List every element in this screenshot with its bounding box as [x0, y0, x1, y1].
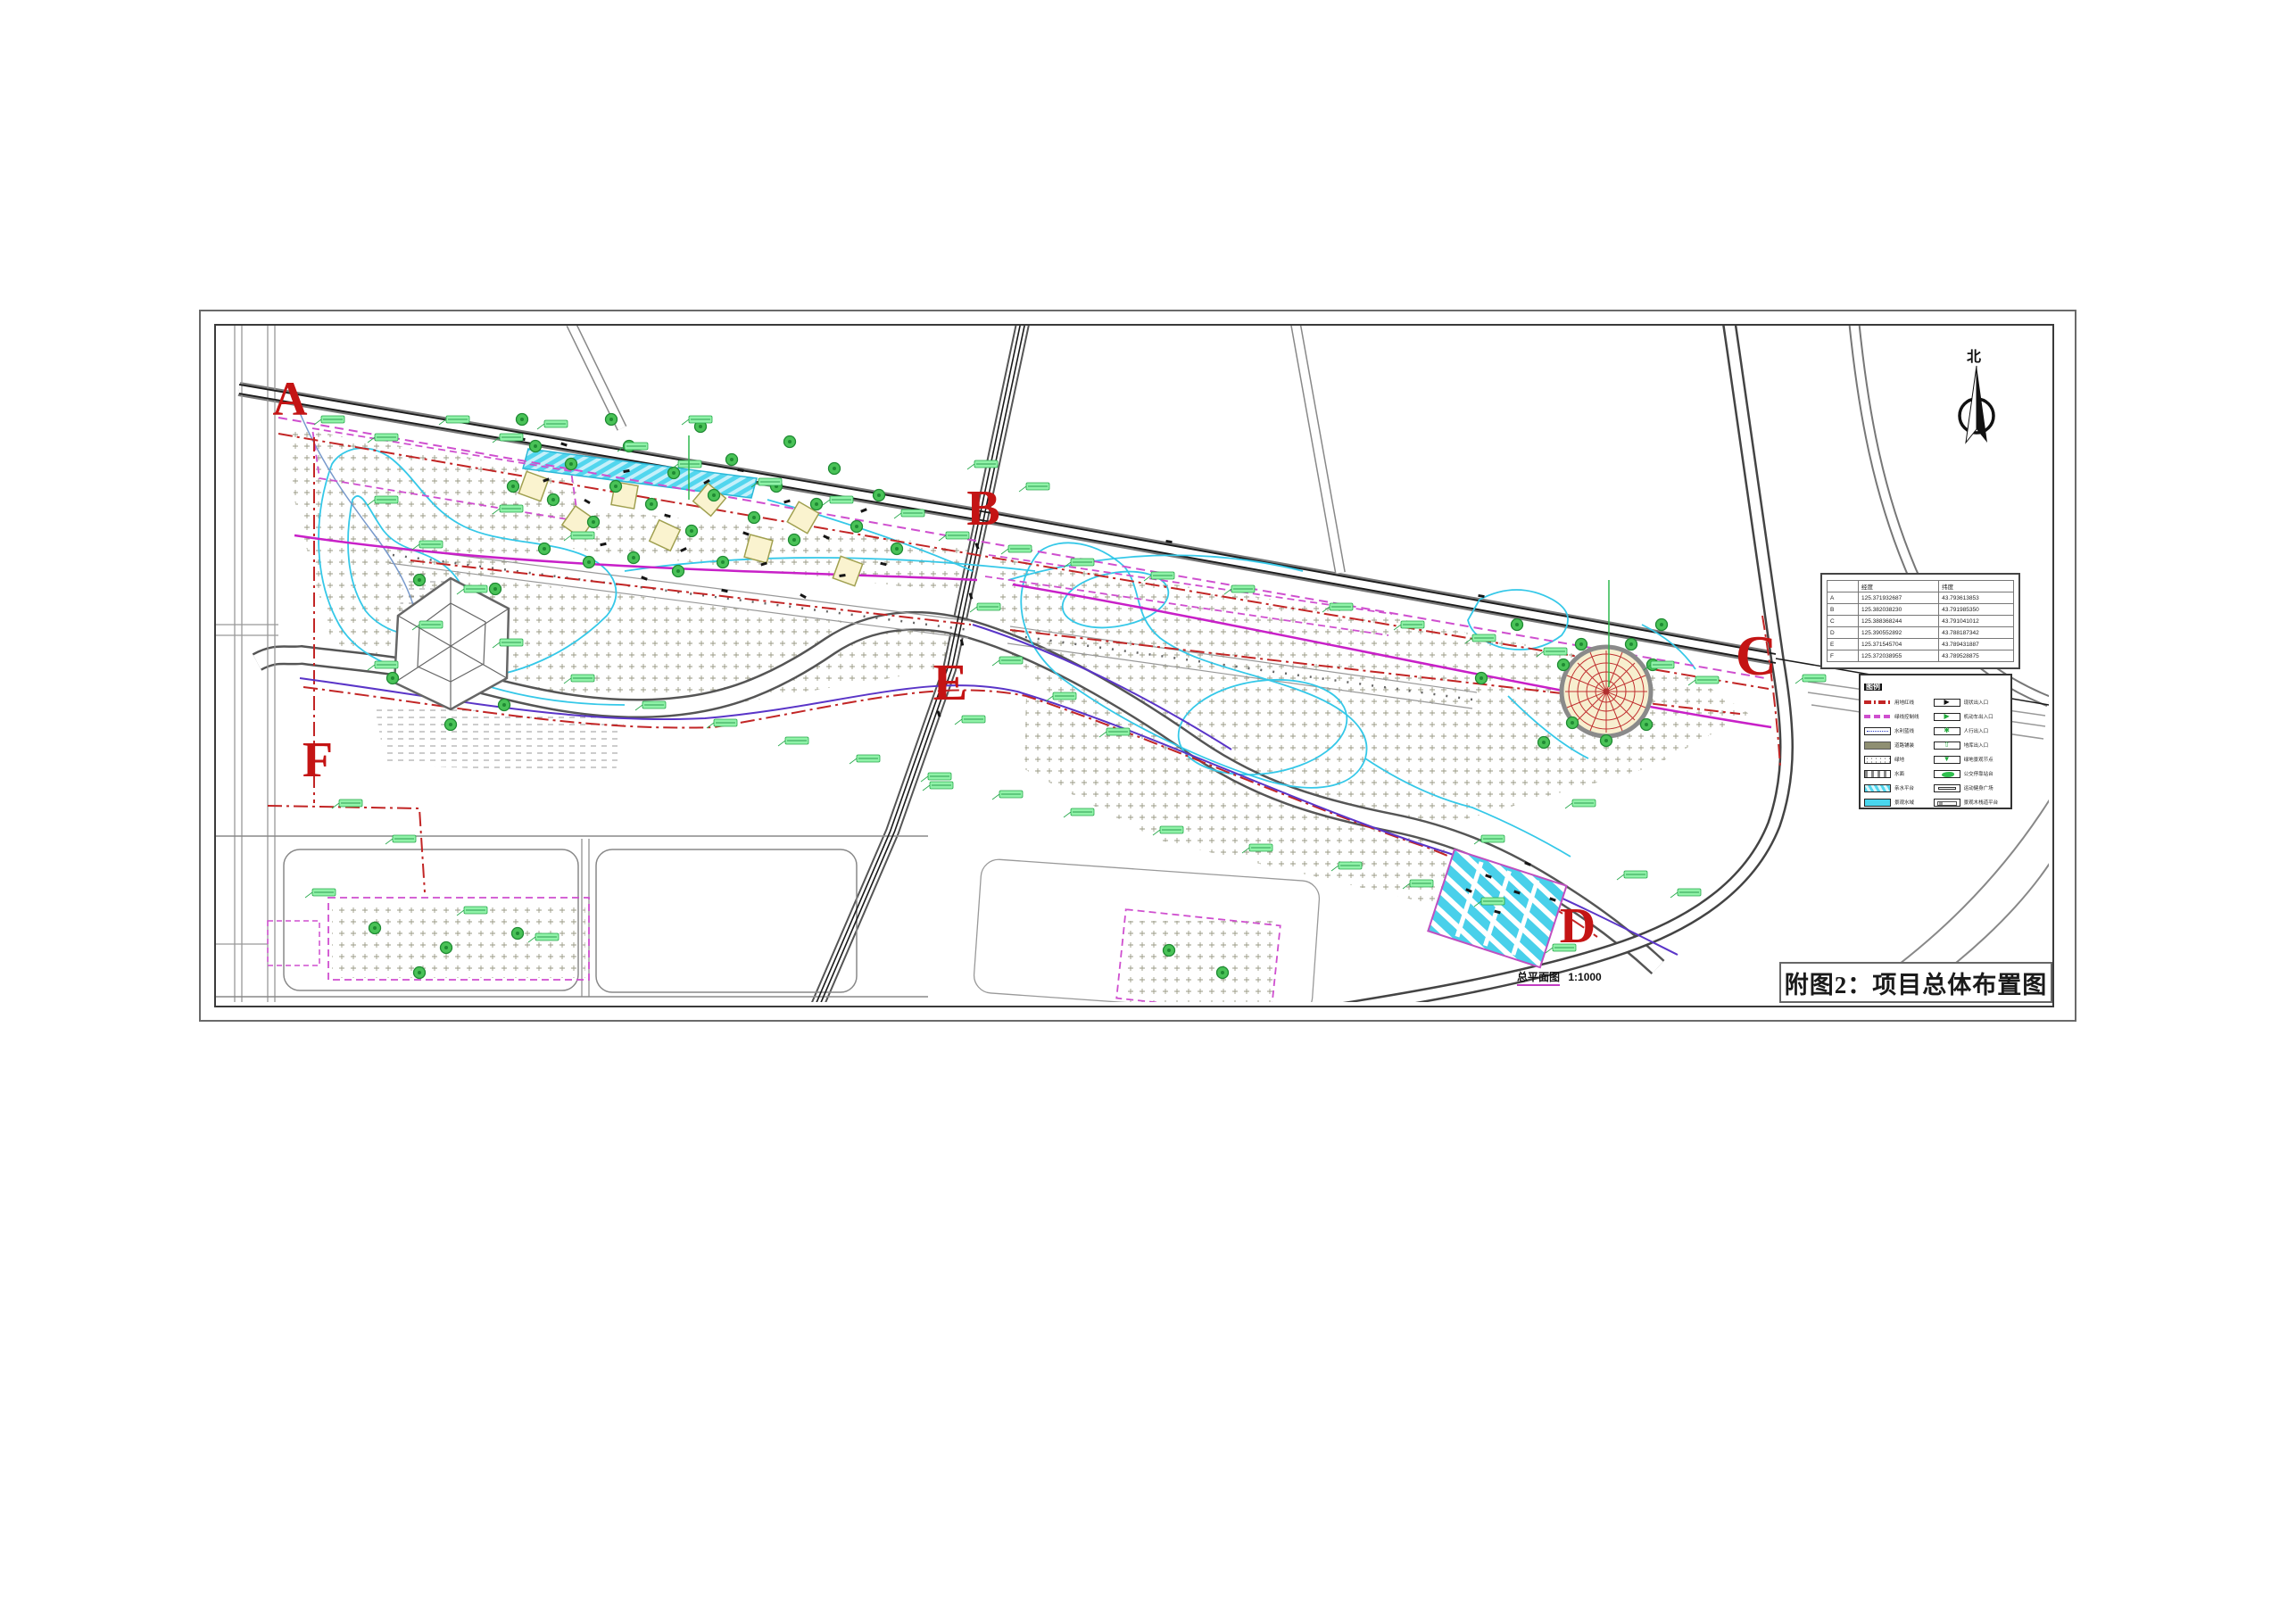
legend-item: 绿线控制线	[1864, 709, 1928, 724]
site-plan-drawing	[0, 0, 2296, 1624]
marker-a: A	[273, 375, 308, 423]
legend-title: 图例	[1864, 684, 1882, 691]
radial-plaza	[1562, 580, 1651, 736]
table-row: D 125.390552892 43.788187342	[1828, 627, 2014, 639]
cell: 43.791985350	[1939, 604, 2014, 616]
legend-label: 绿地	[1894, 756, 1904, 763]
north-arrow: 北	[1945, 346, 2008, 462]
legend-item: 景观木栈道平台	[1934, 795, 2007, 809]
legend-label: 公交停靠站台	[1964, 770, 1993, 777]
cell: A	[1828, 592, 1859, 604]
legend-label: 景观木栈道平台	[1964, 799, 1999, 806]
cell: 125.388368244	[1859, 616, 1939, 627]
marker-b: B	[966, 484, 999, 534]
red-line-swatch	[1864, 700, 1891, 704]
cell: 43.789431887	[1939, 639, 2014, 650]
cell: 125.371932687	[1859, 592, 1939, 604]
legend-item: 道路铺装	[1864, 738, 1928, 752]
legend-label: 亲水平台	[1894, 784, 1914, 791]
entrance-icon: ▶	[1934, 699, 1960, 707]
plan-scale: 1:1000	[1568, 971, 1601, 983]
cell: E	[1828, 639, 1859, 650]
legend-label: 人行出入口	[1964, 727, 1989, 734]
legend-item: ▶ 现状出入口	[1934, 695, 2007, 709]
cell: F	[1828, 650, 1859, 662]
legend-label: 水利蓝线	[1894, 727, 1914, 734]
coordinate-table: 经度 纬度 A 125.371932687 43.793613853 B 125…	[1820, 573, 2020, 669]
cell: 125.371545704	[1859, 639, 1939, 650]
marker-e: E	[933, 657, 968, 708]
landscape-node-icon: ▼	[1934, 756, 1960, 764]
table-row: E 125.371545704 43.789431887	[1828, 639, 2014, 650]
legend-item: 亲水平台	[1864, 781, 1928, 795]
legend-label: 地库出入口	[1964, 742, 1989, 749]
platform-swatch	[1864, 784, 1891, 792]
cell: 125.382038230	[1859, 604, 1939, 616]
water-surface-swatch	[1864, 770, 1891, 778]
legend-label: 用地红线	[1894, 699, 1914, 706]
legend-item: 公交停靠站台	[1934, 766, 2007, 781]
legend-label: 机动车出入口	[1964, 713, 1993, 720]
paving-swatch	[1864, 742, 1891, 750]
col-point	[1828, 581, 1859, 592]
legend-label: 绿线控制线	[1894, 713, 1919, 720]
marker-d: D	[1560, 901, 1596, 951]
plan-name: 总平面图	[1517, 971, 1560, 986]
cell: 43.788187342	[1939, 627, 2014, 639]
legend-label: 道路铺装	[1894, 742, 1914, 749]
legend-label: 水面	[1894, 770, 1904, 777]
legend-label: 景观水域	[1894, 799, 1914, 806]
lake-swatch	[1864, 799, 1891, 807]
marker-c: C	[1736, 627, 1777, 684]
bus-stop-icon	[1934, 770, 1960, 778]
cell: B	[1828, 604, 1859, 616]
sheet-title-box: 附图2：项目总体布置图	[1779, 962, 2052, 1003]
legend-box: 图例 用地红线 绿线控制线 水利蓝线 道路铺装 绿地	[1859, 674, 2012, 809]
legend-item: ▶ 机动车出入口	[1934, 709, 2007, 724]
cell: 43.789528875	[1939, 650, 2014, 662]
legend-item: 运动健身广场	[1934, 781, 2007, 795]
marker-f: F	[303, 735, 333, 785]
cell: 125.372038955	[1859, 650, 1939, 662]
cell: C	[1828, 616, 1859, 627]
blue-line-swatch	[1864, 727, 1891, 735]
green-control-line-swatch	[1864, 715, 1891, 718]
legend-item: ⇧ 地库出入口	[1934, 738, 2007, 752]
legend-label: 运动健身广场	[1964, 784, 1993, 791]
legend-item: 水面	[1864, 766, 1928, 781]
table-row: C 125.388368244 43.791041012	[1828, 616, 2014, 627]
garage-entrance-icon: ⇧	[1934, 742, 1960, 750]
legend-item: 用地红线	[1864, 695, 1928, 709]
cell: 43.791041012	[1939, 616, 2014, 627]
drawing-sheet: A B C D E F 北 经度 纬度 A 125.371932687 43.7…	[0, 0, 2296, 1624]
parking-lot	[1428, 849, 1566, 967]
legend-item: ✱ 人行出入口	[1934, 724, 2007, 738]
boardwalk-icon	[1934, 799, 1960, 807]
cell: 125.390552892	[1859, 627, 1939, 639]
table-row: A 125.371932687 43.793613853	[1828, 592, 2014, 604]
legend-item: 景观水域	[1864, 795, 1928, 809]
legend-label: 绿地景观节点	[1964, 756, 1993, 763]
greenland-swatch	[1864, 756, 1891, 764]
pedestrian-entrance-icon: ✱	[1934, 727, 1960, 735]
cell: 43.793613853	[1939, 592, 2014, 604]
legend-label: 现状出入口	[1964, 699, 1989, 706]
col-latitude: 纬度	[1939, 581, 2014, 592]
table-row: F 125.372038955 43.789528875	[1828, 650, 2014, 662]
legend-item: 水利蓝线	[1864, 724, 1928, 738]
legend-item: ▼ 绿地景观节点	[1934, 752, 2007, 766]
north-label: 北	[1967, 344, 1981, 366]
table-row: B 125.382038230 43.791985350	[1828, 604, 2014, 616]
plan-scale-label: 总平面图 1:1000	[1517, 969, 1602, 984]
cell: D	[1828, 627, 1859, 639]
fitness-plaza-icon	[1934, 784, 1960, 792]
sheet-title: 附图2：项目总体布置图	[1785, 965, 2048, 1000]
legend-item: 绿地	[1864, 752, 1928, 766]
col-longitude: 经度	[1859, 581, 1939, 592]
vehicle-entrance-icon: ▶	[1934, 713, 1960, 721]
